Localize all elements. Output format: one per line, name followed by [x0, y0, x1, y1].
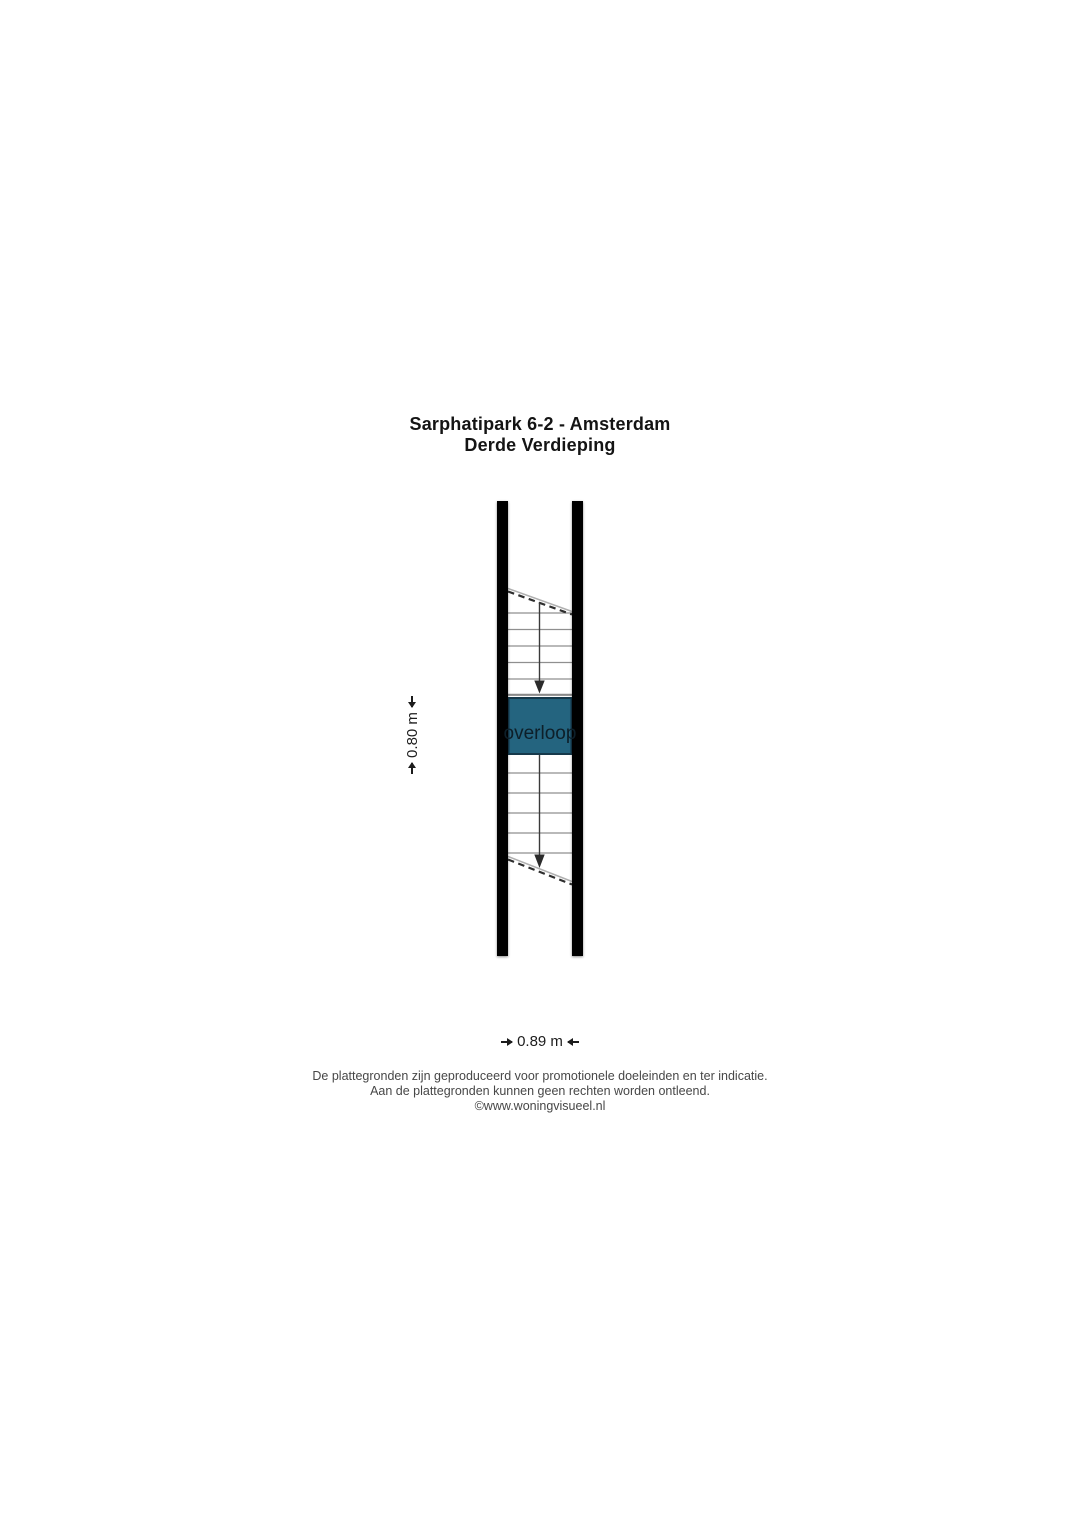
room-overloop: [509, 698, 572, 754]
disclaimer-copyright: ©www.woningvisueel.nl: [0, 1099, 1080, 1114]
dimension-height-value: 0.80 m: [404, 712, 421, 758]
disclaimer-line2: Aan de plattegronden kunnen geen rechten…: [0, 1084, 1080, 1099]
disclaimer-line1: De plattegronden zijn geproduceerd voor …: [0, 1069, 1080, 1084]
staircase-upper: [508, 589, 572, 695]
disclaimer: De plattegronden zijn geproduceerd voor …: [0, 1069, 1080, 1114]
dimension-width-value: 0.89 m: [517, 1033, 563, 1050]
wall-right: [572, 501, 583, 956]
dimension-arrow-icon: [568, 1041, 579, 1043]
dimension-height: 0.80 m: [404, 690, 420, 780]
wall-left: [497, 501, 508, 956]
direction-arrow-head: [534, 681, 544, 694]
dimension-arrow-icon: [411, 763, 413, 774]
direction-arrow-head: [534, 855, 544, 869]
dimension-arrow-icon: [411, 696, 413, 707]
staircase-lower: [508, 755, 572, 885]
dimension-width: 0.89 m: [0, 1033, 1080, 1050]
floorplan-drawing: [0, 0, 1080, 1527]
dimension-arrow-icon: [501, 1041, 512, 1043]
